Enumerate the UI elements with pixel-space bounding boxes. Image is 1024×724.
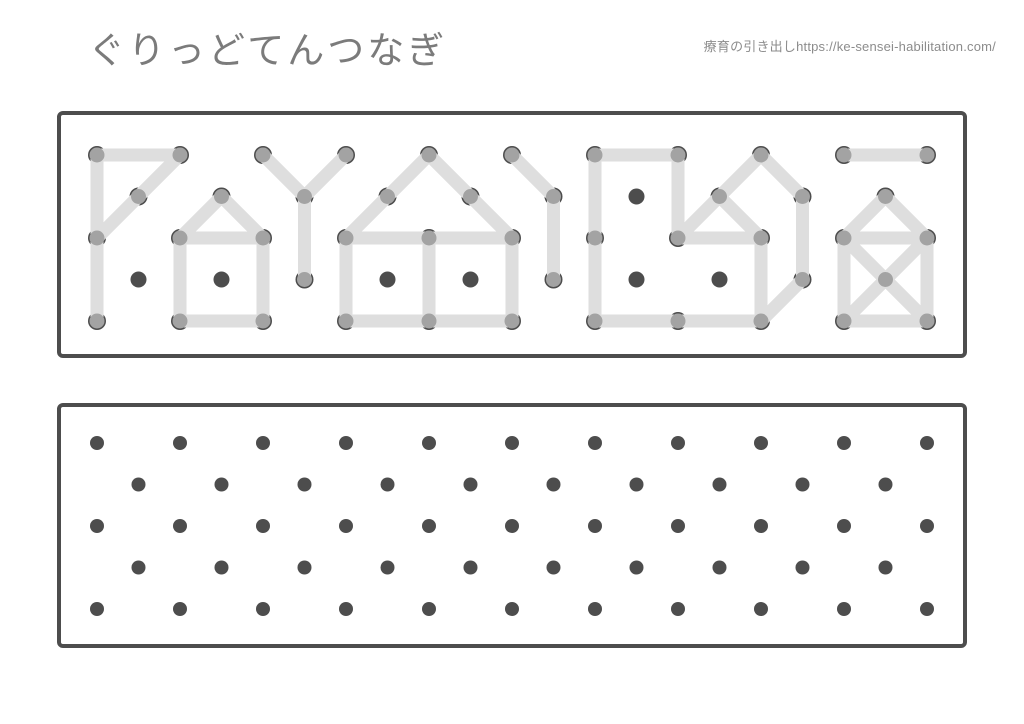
grid-dot <box>920 436 934 450</box>
worksheet-page: { "header": { "title": "ぐりっどてんつなぎ", "cre… <box>0 0 1024 724</box>
grid-dot-inactive <box>214 272 230 288</box>
grid-dot <box>754 519 768 533</box>
grid-dot <box>256 519 270 533</box>
grid-dot-active <box>173 314 188 329</box>
grid-dot <box>837 436 851 450</box>
grid-dot <box>339 519 353 533</box>
grid-dot <box>796 478 810 492</box>
grid-dot-active <box>505 148 520 163</box>
grid-dot <box>588 519 602 533</box>
grid-dot <box>90 602 104 616</box>
grid-dot-active <box>878 272 893 287</box>
grid-dot-active <box>837 148 852 163</box>
grid-dot-active <box>754 314 769 329</box>
grid-dot-active <box>422 148 437 163</box>
grid-dot <box>630 478 644 492</box>
grid-dot-active <box>712 189 727 204</box>
grid-dot-active <box>505 231 520 246</box>
grid-dot-inactive <box>629 272 645 288</box>
grid-dot-active <box>422 314 437 329</box>
grid-dot <box>879 478 893 492</box>
grid-dot <box>547 561 561 575</box>
grid-dot-inactive <box>712 272 728 288</box>
grid-dot <box>298 561 312 575</box>
grid-dot <box>547 478 561 492</box>
grid-dot-active <box>256 148 271 163</box>
grid-dot-active <box>588 231 603 246</box>
grid-dot-active <box>795 189 810 204</box>
grid-dot <box>713 478 727 492</box>
grid-dot-active <box>90 148 105 163</box>
grid-dot <box>754 602 768 616</box>
grid-dot <box>215 561 229 575</box>
grid-dot <box>215 478 229 492</box>
grid-dot-active <box>837 231 852 246</box>
grid-dot <box>173 519 187 533</box>
grid-dot <box>256 602 270 616</box>
grid-dot-active <box>173 148 188 163</box>
grid-dot <box>422 602 436 616</box>
grid-dot <box>90 436 104 450</box>
grid-dot-active <box>297 272 312 287</box>
grid-dot-active <box>131 189 146 204</box>
grid-dot-active <box>297 189 312 204</box>
grid-dot-active <box>90 314 105 329</box>
grid-dot <box>464 478 478 492</box>
grid-dot-active <box>173 231 188 246</box>
grid-dot <box>381 478 395 492</box>
grid-dot-active <box>214 189 229 204</box>
grid-dot <box>879 561 893 575</box>
grid-dot-active <box>671 148 686 163</box>
grid-dot-active <box>920 314 935 329</box>
grid-dot-active <box>754 231 769 246</box>
grid-dot <box>671 602 685 616</box>
grid-dot-active <box>795 272 810 287</box>
grid-dot <box>298 478 312 492</box>
grid-dot <box>422 519 436 533</box>
grid-dot <box>920 519 934 533</box>
grid-dot-active <box>671 314 686 329</box>
grid-dot <box>381 561 395 575</box>
grid-dot-active <box>588 314 603 329</box>
grid-dot <box>671 519 685 533</box>
credit-url-text: 療育の引き出しhttps://ke-sensei-habilitation.co… <box>704 36 996 55</box>
page-title: ぐりっどてんつなぎ <box>88 20 447 74</box>
grid-dot <box>713 561 727 575</box>
grid-dot-active <box>546 272 561 287</box>
grid-dot <box>837 519 851 533</box>
grid-dot <box>588 602 602 616</box>
grid-dot <box>630 561 644 575</box>
grid-dot <box>173 436 187 450</box>
grid-dot <box>339 602 353 616</box>
grid-dot <box>505 519 519 533</box>
grid-dot-active <box>256 231 271 246</box>
grid-dot <box>339 436 353 450</box>
grid-dot-active <box>920 148 935 163</box>
grid-dot <box>837 602 851 616</box>
grid-dot <box>505 436 519 450</box>
practice-grid-panel <box>57 403 967 648</box>
grid-dot <box>464 561 478 575</box>
grid-dot <box>505 602 519 616</box>
grid-dot <box>671 436 685 450</box>
grid-dot-active <box>505 314 520 329</box>
grid-dot <box>256 436 270 450</box>
grid-dot <box>754 436 768 450</box>
grid-dot <box>132 478 146 492</box>
grid-dot-active <box>920 231 935 246</box>
grid-dot-active <box>837 314 852 329</box>
grid-dot-active <box>754 148 769 163</box>
grid-dot <box>796 561 810 575</box>
grid-dot-active <box>339 314 354 329</box>
grid-dot-active <box>671 231 686 246</box>
grid-dot-active <box>256 314 271 329</box>
grid-dot-inactive <box>380 272 396 288</box>
grid-dot-active <box>463 189 478 204</box>
grid-dot-active <box>546 189 561 204</box>
grid-dot-active <box>588 148 603 163</box>
grid-dot-inactive <box>629 189 645 205</box>
grid-dot-active <box>878 189 893 204</box>
grid-dot-inactive <box>463 272 479 288</box>
grid-dot <box>422 436 436 450</box>
grid-dot <box>132 561 146 575</box>
grid-dot-active <box>339 148 354 163</box>
grid-dot <box>588 436 602 450</box>
grid-dot-active <box>422 231 437 246</box>
grid-dot-active <box>380 189 395 204</box>
grid-dot-active <box>339 231 354 246</box>
grid-dot-inactive <box>131 272 147 288</box>
grid-dot <box>920 602 934 616</box>
grid-dot <box>173 602 187 616</box>
grid-dot-active <box>90 231 105 246</box>
sample-grid-panel <box>57 111 967 358</box>
grid-dot <box>90 519 104 533</box>
